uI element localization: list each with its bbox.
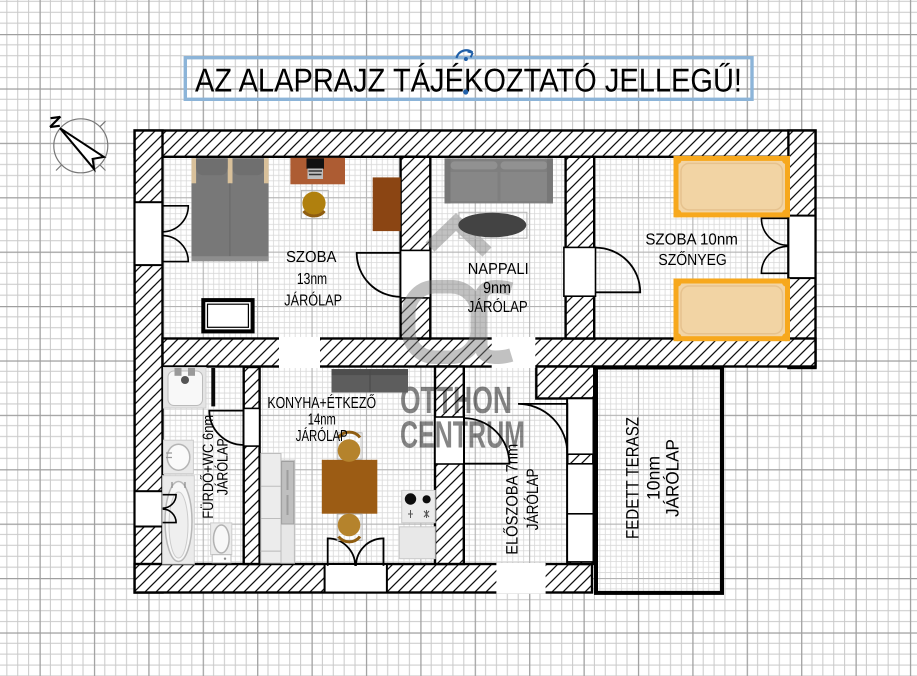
svg-text:JÁRÓLAP: JÁRÓLAP [523, 468, 542, 530]
svg-text:13nm: 13nm [297, 271, 327, 288]
svg-text:14nm: 14nm [308, 411, 336, 428]
svg-text:AZ ALAPRAJZ TÁJÉKOZTATÓ JELLEG: AZ ALAPRAJZ TÁJÉKOZTATÓ JELLEGŰ! [195, 61, 742, 98]
svg-text:JÁRÓLAP: JÁRÓLAP [468, 298, 528, 316]
svg-text:JÁRÓLAP: JÁRÓLAP [284, 292, 342, 310]
svg-text:FEDETT TERASZ: FEDETT TERASZ [623, 417, 643, 539]
svg-text:JÁRÓLAP: JÁRÓLAP [663, 439, 683, 517]
svg-text:SZOBA 10nm: SZOBA 10nm [645, 232, 738, 249]
svg-text:JÁRÓLAP: JÁRÓLAP [296, 427, 348, 445]
svg-text:10nm: 10nm [644, 456, 664, 500]
svg-text:SZOBA: SZOBA [286, 249, 337, 266]
svg-text:9nm: 9nm [483, 280, 511, 297]
svg-text:ELŐSZOBA 7nm: ELŐSZOBA 7nm [503, 444, 522, 555]
svg-text:JÁRÓLAP: JÁRÓLAP [214, 438, 232, 495]
svg-text:SZŐNYEG: SZŐNYEG [658, 251, 726, 269]
svg-text:KONYHA+ÉTKEZŐ: KONYHA+ÉTKEZŐ [267, 394, 376, 412]
svg-text:NAPPALI: NAPPALI [468, 261, 529, 278]
